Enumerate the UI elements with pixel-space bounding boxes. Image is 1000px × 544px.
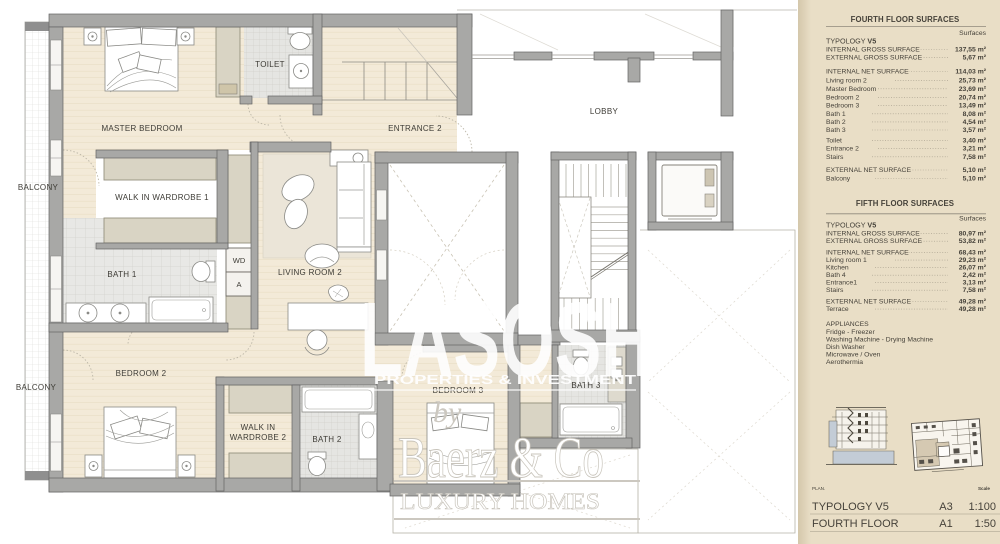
svg-text:LIVING ROOM 2: LIVING ROOM 2 bbox=[278, 268, 342, 277]
svg-text:3,21 m²: 3,21 m² bbox=[963, 146, 987, 153]
svg-text:Aerothermia: Aerothermia bbox=[826, 359, 863, 366]
svg-text:25,73 m²: 25,73 m² bbox=[959, 78, 987, 85]
svg-text:Terrace: Terrace bbox=[826, 306, 849, 313]
svg-text:Surfaces: Surfaces bbox=[959, 216, 986, 223]
svg-text:Bedroom 3: Bedroom 3 bbox=[826, 102, 859, 109]
svg-text:49,28 m²: 49,28 m² bbox=[959, 299, 987, 306]
svg-text:WD: WD bbox=[233, 256, 246, 265]
svg-text:Bath 2: Bath 2 bbox=[826, 119, 846, 126]
svg-text:TOILET: TOILET bbox=[255, 60, 285, 69]
svg-text:Fridge - Freezer: Fridge - Freezer bbox=[826, 329, 875, 336]
svg-text:BATH 2: BATH 2 bbox=[312, 435, 341, 444]
svg-text:BALCONY: BALCONY bbox=[16, 383, 57, 392]
svg-text:INTERNAL GROSS SURFACE: INTERNAL GROSS SURFACE bbox=[826, 47, 920, 54]
svg-text:EXTERNAL NET SURFACE: EXTERNAL NET SURFACE bbox=[826, 299, 911, 306]
svg-text:TYPOLOGY V5: TYPOLOGY V5 bbox=[812, 501, 889, 513]
svg-text:A1: A1 bbox=[939, 518, 952, 530]
svg-text:Entrance1: Entrance1 bbox=[826, 280, 857, 287]
svg-text:68,43 m²: 68,43 m² bbox=[959, 250, 987, 257]
svg-text:49,28 m²: 49,28 m² bbox=[959, 306, 987, 313]
svg-text:2,42 m²: 2,42 m² bbox=[963, 272, 987, 279]
svg-text:Bath 1: Bath 1 bbox=[826, 111, 846, 118]
svg-text:Balcony: Balcony bbox=[826, 176, 851, 183]
svg-text:EXTERNAL GROSS SURFACE: EXTERNAL GROSS SURFACE bbox=[826, 55, 923, 62]
svg-text:Bath 4: Bath 4 bbox=[826, 272, 846, 279]
svg-text:80,97 m²: 80,97 m² bbox=[959, 231, 987, 238]
svg-text:7,58 m²: 7,58 m² bbox=[963, 287, 987, 294]
svg-text:FOURTH FLOOR: FOURTH FLOOR bbox=[812, 518, 899, 530]
svg-text:Entrance 2: Entrance 2 bbox=[826, 146, 859, 153]
svg-text:Toilet: Toilet bbox=[826, 138, 842, 145]
svg-text:3,40 m²: 3,40 m² bbox=[963, 138, 987, 145]
svg-text:20,74 m²: 20,74 m² bbox=[959, 94, 987, 101]
svg-text:A3: A3 bbox=[939, 501, 952, 513]
svg-text:Kitchen: Kitchen bbox=[826, 265, 849, 272]
svg-text:Bedroom 2: Bedroom 2 bbox=[826, 94, 859, 101]
svg-text:Master Bedroom: Master Bedroom bbox=[826, 86, 877, 93]
svg-text:53,82 m²: 53,82 m² bbox=[959, 238, 987, 245]
svg-text:LOBBY: LOBBY bbox=[590, 107, 619, 116]
svg-text:Bath 3: Bath 3 bbox=[826, 127, 846, 134]
svg-text:5,10 m²: 5,10 m² bbox=[963, 176, 987, 183]
svg-text:4,54 m²: 4,54 m² bbox=[963, 119, 987, 126]
svg-text:FIFTH FLOOR SURFACES: FIFTH FLOOR SURFACES bbox=[856, 199, 954, 208]
svg-text:Living room 1: Living room 1 bbox=[826, 257, 867, 264]
svg-text:7,58 m²: 7,58 m² bbox=[963, 154, 987, 161]
svg-text:ENTRANCE 2: ENTRANCE 2 bbox=[388, 124, 442, 133]
svg-text:TYPOLOGY V5: TYPOLOGY V5 bbox=[826, 37, 876, 46]
svg-text:137,55 m²: 137,55 m² bbox=[955, 47, 987, 54]
svg-text:1:100: 1:100 bbox=[968, 501, 996, 513]
svg-text:PLAN.: PLAN. bbox=[812, 486, 825, 491]
svg-text:MASTER BEDROOM: MASTER BEDROOM bbox=[101, 124, 182, 133]
svg-text:LUXURY HOMES: LUXURY HOMES bbox=[400, 489, 600, 514]
svg-text:BALCONY: BALCONY bbox=[18, 183, 59, 192]
svg-text:INTERNAL NET SURFACE: INTERNAL NET SURFACE bbox=[826, 69, 909, 76]
svg-text:Stairs: Stairs bbox=[826, 154, 844, 161]
svg-text:3,57 m²: 3,57 m² bbox=[963, 127, 987, 134]
svg-text:3,13 m²: 3,13 m² bbox=[963, 280, 987, 287]
svg-text:Scale: Scale bbox=[978, 486, 990, 491]
svg-text:BEDROOM 2: BEDROOM 2 bbox=[116, 369, 167, 378]
svg-text:EXTERNAL NET SURFACE: EXTERNAL NET SURFACE bbox=[826, 167, 911, 174]
svg-text:WALK IN: WALK IN bbox=[241, 423, 276, 432]
svg-text:23,69 m²: 23,69 m² bbox=[959, 86, 987, 93]
svg-text:13,49 m²: 13,49 m² bbox=[959, 102, 987, 109]
svg-text:WALK IN WARDROBE 1: WALK IN WARDROBE 1 bbox=[115, 193, 209, 202]
svg-text:Living room 2: Living room 2 bbox=[826, 78, 867, 85]
svg-text:26,07 m²: 26,07 m² bbox=[959, 265, 987, 272]
svg-text:WARDROBE 2: WARDROBE 2 bbox=[230, 433, 287, 442]
svg-text:1:50: 1:50 bbox=[975, 518, 996, 530]
svg-text:Washing Machine - Drying Machi: Washing Machine - Drying Machine bbox=[826, 337, 933, 344]
svg-text:Stairs: Stairs bbox=[826, 287, 844, 294]
svg-text:5,67 m²: 5,67 m² bbox=[963, 55, 987, 62]
svg-text:A: A bbox=[236, 280, 241, 289]
svg-text:5,10 m²: 5,10 m² bbox=[963, 167, 987, 174]
svg-text:FOURTH FLOOR SURFACES: FOURTH FLOOR SURFACES bbox=[851, 15, 960, 24]
svg-text:Dish Washer: Dish Washer bbox=[826, 344, 865, 351]
svg-text:Microwave / Oven: Microwave / Oven bbox=[826, 352, 881, 359]
svg-text:PROPERTIES & INVESTMENT: PROPERTIES & INVESTMENT bbox=[374, 373, 637, 387]
svg-text:INTERNAL GROSS SURFACE: INTERNAL GROSS SURFACE bbox=[826, 231, 920, 238]
svg-text:BATH 1: BATH 1 bbox=[107, 270, 136, 279]
svg-text:APPLIANCES: APPLIANCES bbox=[826, 321, 869, 328]
svg-text:114,03 m²: 114,03 m² bbox=[955, 69, 986, 76]
svg-text:8,08 m²: 8,08 m² bbox=[963, 111, 987, 118]
svg-text:EXTERNAL GROSS SURFACE: EXTERNAL GROSS SURFACE bbox=[826, 238, 923, 245]
svg-text:29,23 m²: 29,23 m² bbox=[959, 257, 987, 264]
svg-text:INTERNAL NET SURFACE: INTERNAL NET SURFACE bbox=[826, 250, 909, 257]
svg-text:Surfaces: Surfaces bbox=[959, 30, 986, 37]
svg-text:TYPOLOGY V5: TYPOLOGY V5 bbox=[826, 221, 876, 230]
